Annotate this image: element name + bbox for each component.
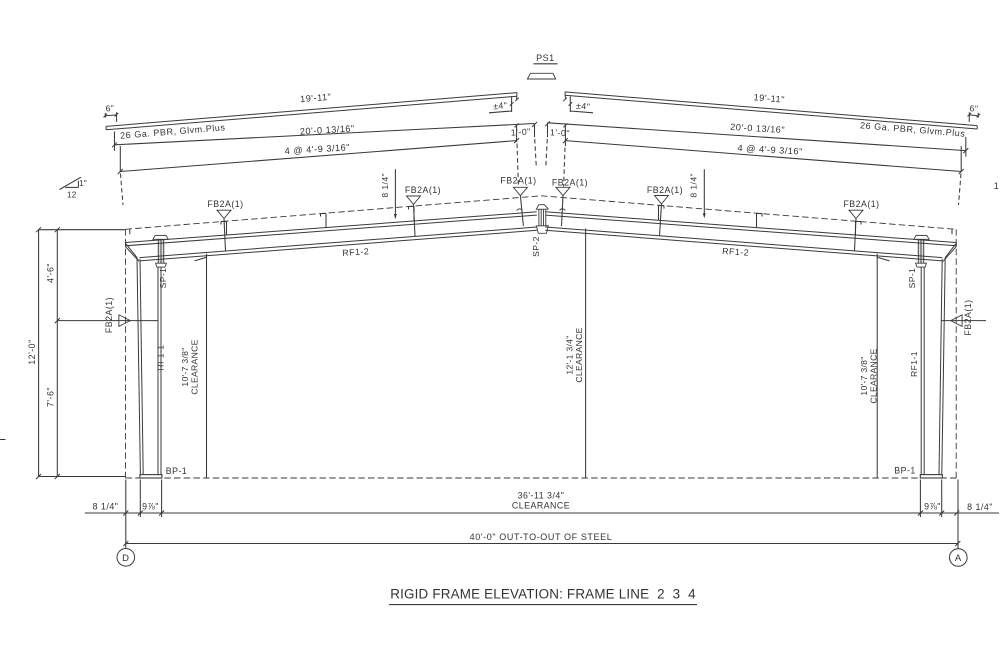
svg-text:19'-11": 19'-11" [300,92,332,104]
svg-text:10'-7 3/8": 10'-7 3/8" [859,356,869,395]
svg-text:RF1-1: RF1-1 [156,345,166,371]
svg-text:SP-2: SP-2 [531,236,541,257]
svg-text:20'-0 13/16": 20'-0 13/16" [730,122,785,135]
svg-text:RF1-1: RF1-1 [909,351,919,377]
svg-text:PS1: PS1 [536,53,555,63]
svg-text:D: D [122,553,129,564]
svg-text:SP-1: SP-1 [158,268,168,289]
svg-text:FB2A(1): FB2A(1) [843,199,879,209]
svg-text:8 1/4": 8 1/4" [967,502,993,512]
svg-text:RF1-2: RF1-2 [722,246,750,258]
svg-text:SP-1: SP-1 [907,268,917,289]
svg-text:8 1/4": 8 1/4" [93,501,119,511]
svg-text:20'-0 13/16": 20'-0 13/16" [300,123,355,136]
svg-text:CLEARANCE: CLEARANCE [512,501,570,511]
svg-text:±4": ±4" [493,100,508,111]
svg-text:1": 1" [79,179,87,188]
svg-text:26 Ga. PBR, Glvm.Plus: 26 Ga. PBR, Glvm.Plus [120,122,226,140]
svg-text:6": 6" [105,103,115,114]
svg-text:FB2A(1): FB2A(1) [647,185,683,195]
svg-text:9⅞": 9⅞" [142,502,159,512]
svg-text:6": 6" [969,103,979,114]
svg-text:BP-1: BP-1 [894,466,916,476]
svg-text:FB2A(1): FB2A(1) [500,176,536,186]
svg-text:7'-6": 7'-6" [46,387,56,407]
svg-text:CLEARANCE: CLEARANCE [574,327,584,382]
svg-text:FB2A(1): FB2A(1) [405,185,441,195]
svg-text:12: 12 [67,191,77,200]
svg-text:12'-0": 12'-0" [27,339,37,364]
svg-text:8 1/4": 8 1/4" [380,173,390,198]
svg-text:FB2A(1): FB2A(1) [552,177,588,187]
svg-text:12'-1 3/4": 12'-1 3/4" [565,335,575,374]
svg-text:10'-7 3/8": 10'-7 3/8" [180,347,190,386]
svg-text:FB2A(1): FB2A(1) [963,299,973,335]
svg-text:40'-0" OUT-TO-OUT OF STEEL: 40'-0" OUT-TO-OUT OF STEEL [470,532,613,542]
svg-text:1'-0": 1'-0" [511,126,532,137]
svg-text:1'-0": 1'-0" [550,127,571,138]
svg-text:BP-1: BP-1 [166,466,188,476]
svg-text:±4": ±4" [576,101,591,112]
svg-text:8 1/4": 8 1/4" [689,173,699,198]
svg-text:A: A [955,553,962,564]
svg-text:4'-6": 4'-6" [46,263,56,283]
svg-text:CLEARANCE: CLEARANCE [868,348,878,403]
svg-text:1: 1 [994,181,1000,191]
svg-text:9⅞": 9⅞" [924,502,941,512]
svg-text:36'-11 3/4": 36'-11 3/4" [518,491,565,501]
svg-text:FB2A(1): FB2A(1) [207,199,243,209]
svg-text:FB2A(1): FB2A(1) [104,297,114,333]
svg-text:RIGID FRAME ELEVATION: FRAME L: RIGID FRAME ELEVATION: FRAME LINE 2 3 4 [390,587,696,602]
svg-text:19'-11": 19'-11" [753,92,785,104]
svg-text:CLEARANCE: CLEARANCE [190,339,200,394]
svg-text:RF1-2: RF1-2 [342,246,370,258]
